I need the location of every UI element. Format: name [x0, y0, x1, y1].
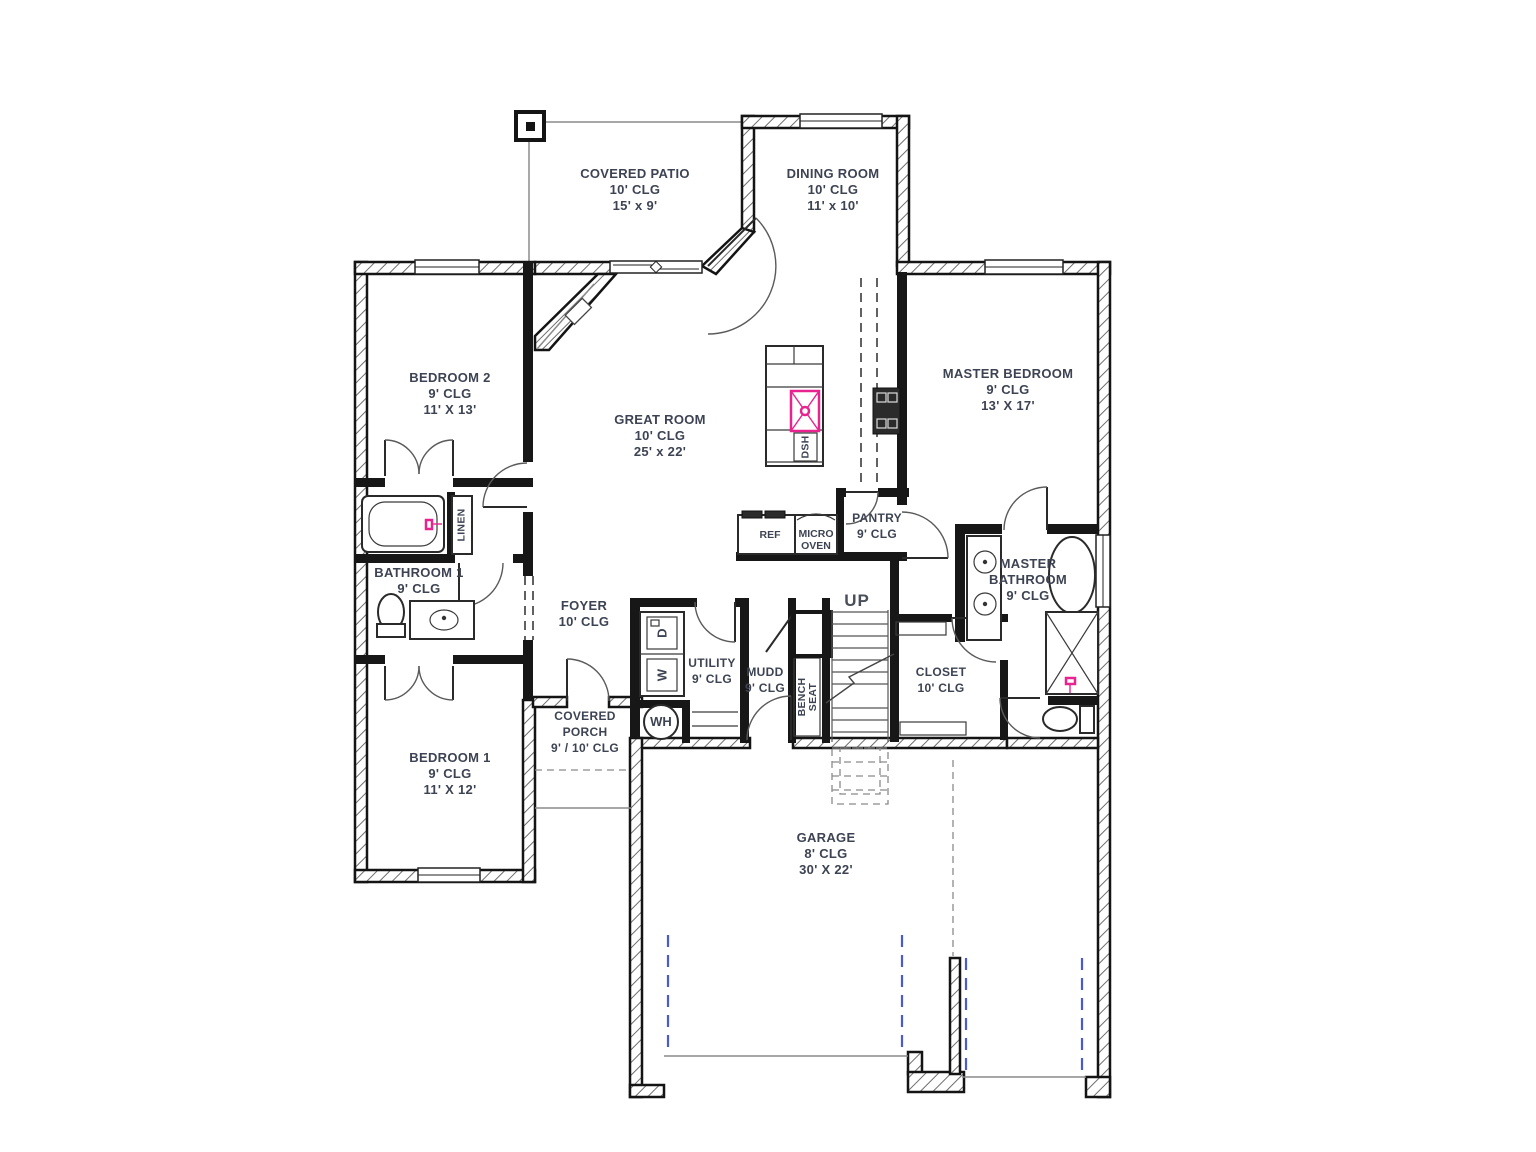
room-label-utility: UTILITY 9' CLG [688, 655, 735, 687]
master-bath-window [1096, 535, 1110, 607]
master-suite-door [902, 512, 948, 558]
stair-break-line [826, 654, 894, 703]
dining-window [800, 114, 882, 128]
washer-dryer-stack [640, 612, 684, 696]
garage-door-lines [664, 760, 1086, 1077]
room-label-covered-porch: COVERED PORCH 9' / 10' CLG [542, 708, 628, 756]
corner-fireplace [535, 274, 616, 350]
vanity-1 [410, 601, 474, 639]
floor-plan-drawing [0, 0, 1536, 1152]
room-label-garage: GARAGE 8' CLG 30' X 22' [797, 830, 856, 878]
microwave-label: MICRO OVEN [792, 528, 840, 552]
room-label-master-bathroom: MASTER BATHROOM 9' CLG [980, 556, 1076, 604]
washer-label: W [657, 669, 668, 682]
great-room-slider [610, 261, 702, 273]
porch-lines [535, 770, 631, 808]
island-sink [791, 391, 819, 431]
dryer-label: D [657, 628, 668, 638]
master-shower [1046, 612, 1098, 694]
master-bedroom-window [985, 260, 1063, 274]
room-label-bathroom-1: BATHROOM 1 9' CLG [374, 565, 463, 597]
stairs-up-label: UP [844, 595, 870, 607]
master-bath-door [1004, 487, 1047, 530]
bedroom2-window [415, 260, 479, 274]
range [873, 388, 900, 434]
room-label-mudd: MUDD 9' CLG [745, 664, 785, 696]
room-label-bedroom-1: BEDROOM 1 9' CLG 11' X 12' [409, 750, 490, 798]
room-label-foyer: FOYER 10' CLG [559, 598, 610, 630]
bench-seat-label: BENCH SEAT [797, 671, 819, 723]
bedroom2-double-doors [385, 440, 453, 476]
stairs [826, 610, 894, 804]
room-label-pantry: PANTRY 9' CLG [852, 510, 902, 542]
dishwasher-label: DSH [801, 435, 812, 458]
mudd-garage-door [747, 696, 791, 740]
room-label-great-room: GREAT ROOM 10' CLG 25' x 22' [614, 412, 706, 460]
water-heater-label: WH [650, 716, 672, 728]
front-door [567, 659, 609, 701]
room-label-dining-room: DINING ROOM 10' CLG 11' x 10' [787, 166, 880, 214]
bedroom1-double-doors [385, 666, 453, 700]
refrigerator-label: REF [760, 529, 781, 541]
toilet-1 [377, 594, 405, 637]
bathtub [362, 496, 444, 552]
floor-plan: COVERED PATIO 10' CLG 15' x 9' DINING RO… [0, 0, 1536, 1152]
linen-label: LINEN [457, 509, 468, 542]
stairs-dashed-continuation [832, 748, 888, 804]
room-label-covered-patio: COVERED PATIO 10' CLG 15' x 9' [580, 166, 690, 214]
master-toilet [1043, 706, 1094, 733]
room-label-master-bedroom: MASTER BEDROOM 9' CLG 13' X 17' [943, 366, 1074, 414]
utility-door [695, 602, 735, 642]
room-label-closet: CLOSET 10' CLG [916, 664, 966, 696]
windows [415, 114, 1110, 882]
room-label-bedroom-2: BEDROOM 2 9' CLG 11' X 13' [409, 370, 490, 418]
bedroom1-window [418, 868, 480, 882]
